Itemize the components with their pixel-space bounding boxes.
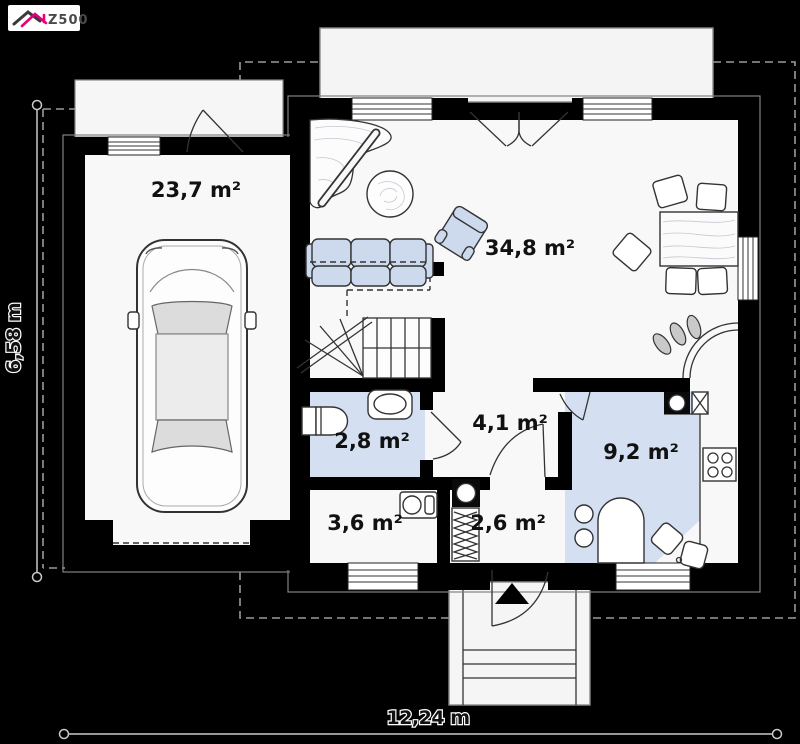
width-dimension-label: 12,24 m [386,707,469,729]
house-wall-bottom-1 [290,563,348,590]
stool-2 [575,529,593,547]
stove-icon [703,448,736,481]
kitchen-area-label: 9,2 m² [603,440,679,464]
washing-machine-icon [400,492,437,518]
hall-area-label: 4,1 m² [472,411,548,435]
car-icon [128,240,256,512]
garage-wall-left [65,137,85,570]
kitchen-sink-icon [664,392,708,414]
stair-side-wall [431,318,445,378]
floor-plan-canvas: 23,7 m² 34,8 m² 2,8 m² 4,1 m² 9,2 m² 3,6… [0,0,800,744]
floor-plan-drawing: 23,7 m² 34,8 m² 2,8 m² 4,1 m² 9,2 m² 3,6… [0,0,800,744]
carport-forecourt [75,80,283,137]
house-wall-right-1 [738,98,758,237]
depth-dimension-label: 6,58 m [3,303,25,373]
utility-window [348,563,418,590]
bath-door-stub-top [420,392,433,410]
wall-hall-vestibule-2 [545,477,572,490]
mirror-left [128,312,139,329]
garage-area-label: 23,7 m² [151,178,241,202]
house-wall-left [290,98,310,590]
kitchen-wall-left [558,412,572,477]
bathroom-sink-icon [368,390,412,419]
house-wall-right-2 [738,300,758,590]
vestibule-area-label: 2,6 m² [470,511,546,535]
dining-table [660,212,738,266]
house-wall-bottom-3 [548,563,616,590]
wall-bath-utility [290,477,440,490]
living-window-left [352,98,432,120]
bath-door-stub-bottom [420,460,433,477]
garage-window [108,137,160,155]
kitchen-window [616,563,690,590]
dimension-depth: 6,58 m [3,101,42,582]
house-wall-bottom-2 [418,563,490,590]
boiler-icon [452,479,480,507]
logo-text: Z500 [48,13,89,28]
terrace [320,28,713,102]
living-window-right [583,98,652,120]
garage-door-stub-left [85,520,113,545]
dimension-width: 12,24 m [60,707,782,739]
garage-wall-bottom [65,545,310,570]
utility-area-label: 3,6 m² [327,511,403,535]
kitchen-cabinet-rounded [598,498,644,563]
brand-logo: Z500 [8,5,89,31]
wall-living-bath [290,378,445,392]
bathroom-area-label: 2,8 m² [334,429,410,453]
windshield [152,302,232,335]
garage-door-stub-right [250,520,290,545]
house-wall-top-3 [572,98,583,120]
wall-utility-vestibule [437,477,450,563]
living-area-label: 34,8 m² [485,236,575,260]
round-rug [367,171,413,217]
wall-living-kitchen [533,378,690,392]
house-wall-top-2 [432,98,468,120]
stool-1 [575,505,593,523]
car-roof [156,334,228,420]
dining-window-side [738,237,758,300]
mirror-right [245,312,256,329]
house-wall-top-1 [290,98,352,120]
